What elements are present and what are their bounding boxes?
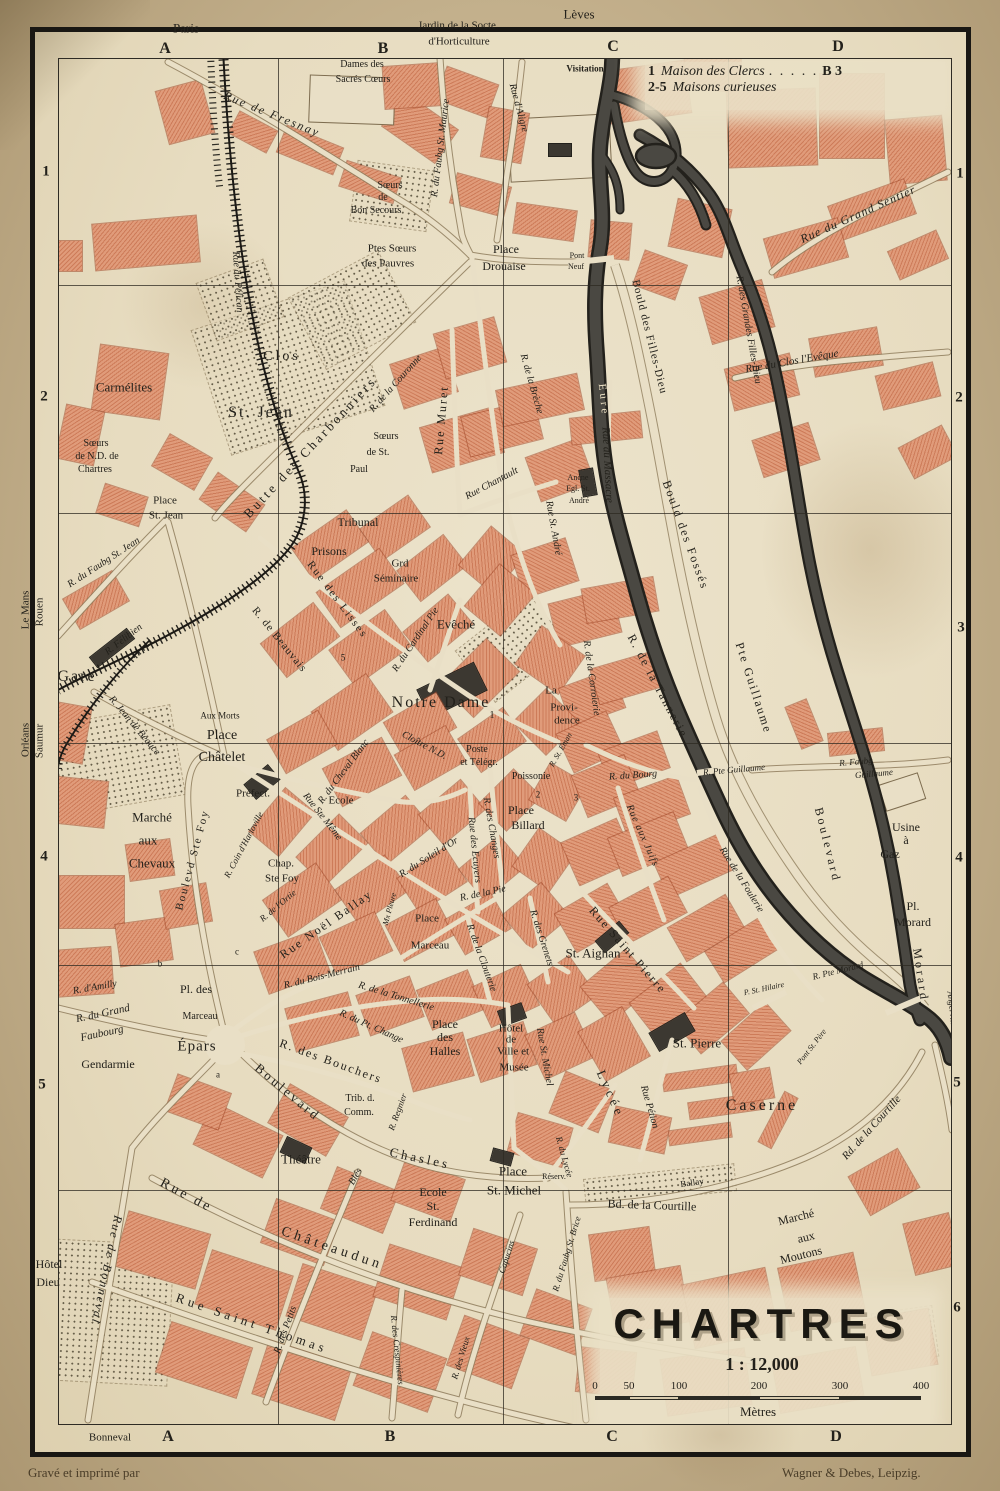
vintage-city-map: 1 Maison des Clercs . . . . . B 3 2-5 Ma… bbox=[0, 0, 1000, 1491]
map-label: Lèves bbox=[563, 8, 594, 21]
map-inner-border bbox=[58, 58, 952, 1425]
engraver-imprint: Gravé et imprimé par bbox=[28, 1465, 140, 1481]
publisher-imprint: Wagner & Debes, Leipzig. bbox=[782, 1465, 921, 1481]
